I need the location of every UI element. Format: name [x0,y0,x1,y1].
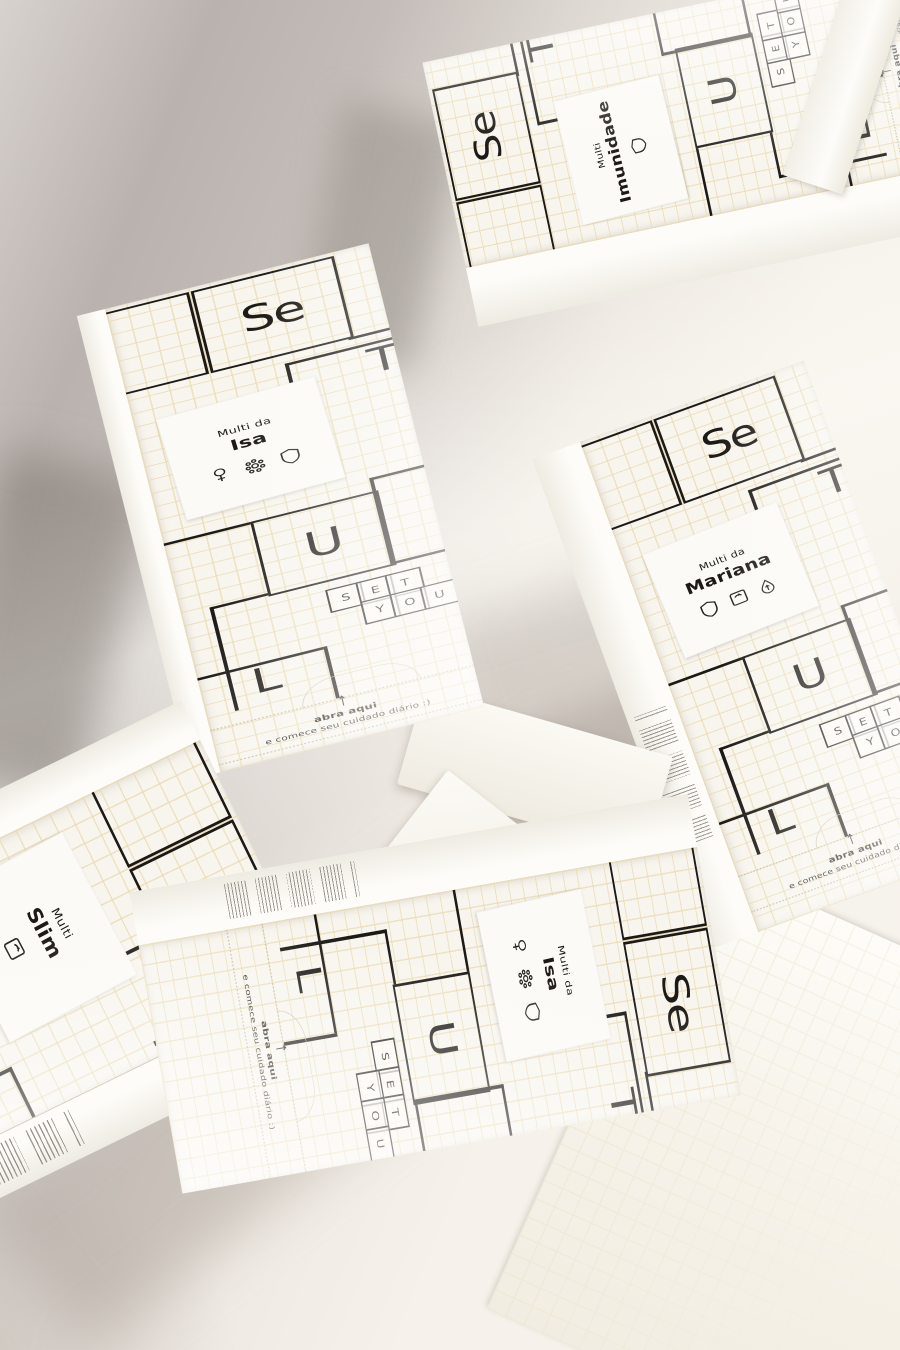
product-photo-scene: Se T Multi Imunidade [0,0,900,1350]
